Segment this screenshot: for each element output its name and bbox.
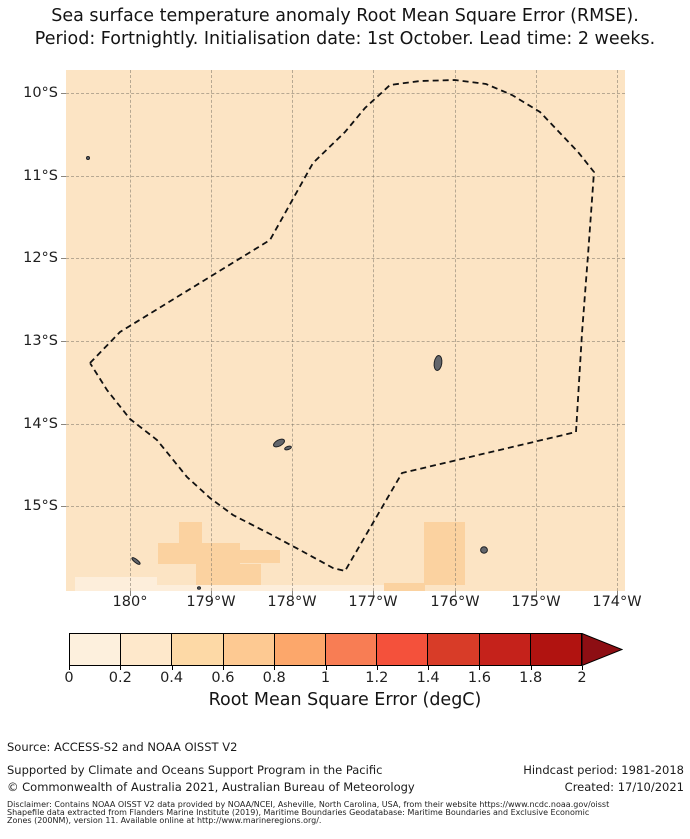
grid-line-vertical — [292, 70, 293, 591]
x-tick-label: 180° — [90, 594, 170, 610]
hindcast-period-text: Hindcast period: 1981-2018 — [523, 763, 684, 777]
y-tick-label: 15°S — [12, 498, 58, 515]
x-tick-label: 177°W — [333, 594, 413, 610]
colorbar-label: Root Mean Square Error (degC) — [0, 690, 690, 710]
grid-line-vertical — [373, 70, 374, 591]
colorbar-tick-label: 1.2 — [355, 670, 399, 686]
colorbar-segment — [274, 634, 325, 665]
colorbar-tick-label: 1.8 — [509, 670, 553, 686]
colorbar-segment — [427, 634, 478, 665]
rmse-cell — [157, 585, 384, 591]
colorbar-tick-label: 0 — [47, 670, 91, 686]
grid-line-vertical — [617, 70, 618, 591]
colorbar-extend-arrow — [582, 633, 623, 666]
grid-line-vertical — [455, 70, 456, 591]
colorbar-tick-label: 0.6 — [201, 670, 245, 686]
source-text: Source: ACCESS-S2 and NOAA OISST V2 — [7, 740, 237, 754]
disclaimer-line3: Zones (200NM), version 11. Available onl… — [7, 817, 688, 825]
colorbar-segment — [70, 634, 120, 665]
rmse-cell — [179, 522, 202, 543]
x-tick-label: 175°W — [496, 594, 576, 610]
rmse-cell — [240, 550, 280, 563]
created-date-text: Created: 17/10/2021 — [565, 780, 684, 794]
y-axis-tick — [61, 424, 66, 425]
copyright-text: © Commonwealth of Australia 2021, Austra… — [7, 780, 415, 794]
colorbar-segment — [120, 634, 171, 665]
rmse-cell — [75, 577, 157, 591]
colorbar-arrow-shape — [582, 634, 622, 666]
colorbar-segment — [325, 634, 376, 665]
x-tick-label: 179°W — [171, 594, 251, 610]
grid-line-horizontal — [66, 341, 625, 342]
grid-line-horizontal — [66, 506, 625, 507]
y-tick-label: 13°S — [12, 333, 58, 350]
y-axis-tick — [61, 258, 66, 259]
y-axis-tick — [61, 93, 66, 94]
rmse-cell — [158, 543, 240, 564]
grid-line-vertical — [130, 70, 131, 591]
map-stage: 180°179°W178°W177°W176°W175°W174°W10°S11… — [0, 0, 690, 839]
colorbar-segment — [479, 634, 530, 665]
grid-line-vertical — [536, 70, 537, 591]
y-tick-label: 12°S — [12, 250, 58, 267]
x-tick-label: 178°W — [252, 594, 332, 610]
x-tick-label: 174°W — [577, 594, 657, 610]
rmse-cell — [384, 583, 425, 591]
grid-line-horizontal — [66, 93, 625, 94]
grid-line-horizontal — [66, 176, 625, 177]
colorbar-tick-label: 1.4 — [406, 670, 450, 686]
colorbar-tick-label: 0.2 — [98, 670, 142, 686]
y-tick-label: 11°S — [12, 168, 58, 185]
y-axis-tick — [61, 341, 66, 342]
colorbar-tick-label: 0.8 — [252, 670, 296, 686]
y-tick-label: 10°S — [12, 85, 58, 102]
colorbar-tick-label: 1.6 — [457, 670, 501, 686]
colorbar — [69, 633, 582, 666]
y-tick-label: 14°S — [12, 416, 58, 433]
rmse-cell — [424, 522, 465, 585]
figure-root: { "title": { "line1": "Sea surface tempe… — [0, 0, 690, 839]
map-ocean-fill — [66, 70, 625, 591]
y-axis-tick — [61, 506, 66, 507]
supported-by-text: Supported by Climate and Oceans Support … — [7, 763, 382, 777]
colorbar-segment — [530, 634, 581, 665]
colorbar-segment — [171, 634, 222, 665]
colorbar-segment — [223, 634, 274, 665]
colorbar-tick-label: 0.4 — [150, 670, 194, 686]
y-axis-tick — [61, 176, 66, 177]
grid-line-horizontal — [66, 258, 625, 259]
grid-line-vertical — [211, 70, 212, 591]
colorbar-segment — [376, 634, 427, 665]
colorbar-tick-label: 2 — [560, 670, 604, 686]
grid-line-horizontal — [66, 424, 625, 425]
colorbar-tick-label: 1 — [304, 670, 348, 686]
rmse-cell — [196, 564, 261, 585]
x-tick-label: 176°W — [415, 594, 495, 610]
